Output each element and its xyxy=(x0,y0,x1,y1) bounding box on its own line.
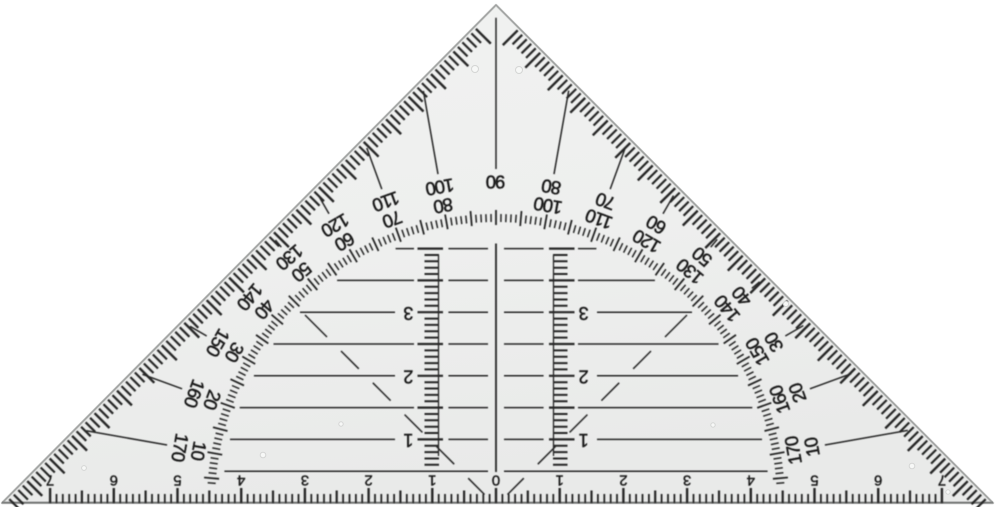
svg-text:1: 1 xyxy=(428,472,436,489)
svg-text:6: 6 xyxy=(874,472,882,489)
svg-text:90: 90 xyxy=(486,172,505,193)
svg-text:2: 2 xyxy=(579,367,589,387)
svg-text:1: 1 xyxy=(579,430,589,450)
svg-text:3: 3 xyxy=(579,303,589,323)
svg-text:3: 3 xyxy=(301,472,309,489)
svg-text:0: 0 xyxy=(492,472,500,489)
svg-text:3: 3 xyxy=(683,472,691,489)
svg-text:6: 6 xyxy=(110,472,118,489)
svg-text:4: 4 xyxy=(747,472,755,489)
svg-text:3: 3 xyxy=(403,303,413,323)
svg-text:2: 2 xyxy=(364,472,372,489)
svg-text:5: 5 xyxy=(173,472,181,489)
svg-text:7: 7 xyxy=(46,472,54,489)
svg-text:5: 5 xyxy=(810,472,818,489)
svg-text:4: 4 xyxy=(237,472,245,489)
svg-text:7: 7 xyxy=(938,472,946,489)
svg-text:2: 2 xyxy=(403,367,413,387)
svg-text:1: 1 xyxy=(556,472,564,489)
svg-text:2: 2 xyxy=(619,472,627,489)
svg-text:1: 1 xyxy=(403,430,413,450)
